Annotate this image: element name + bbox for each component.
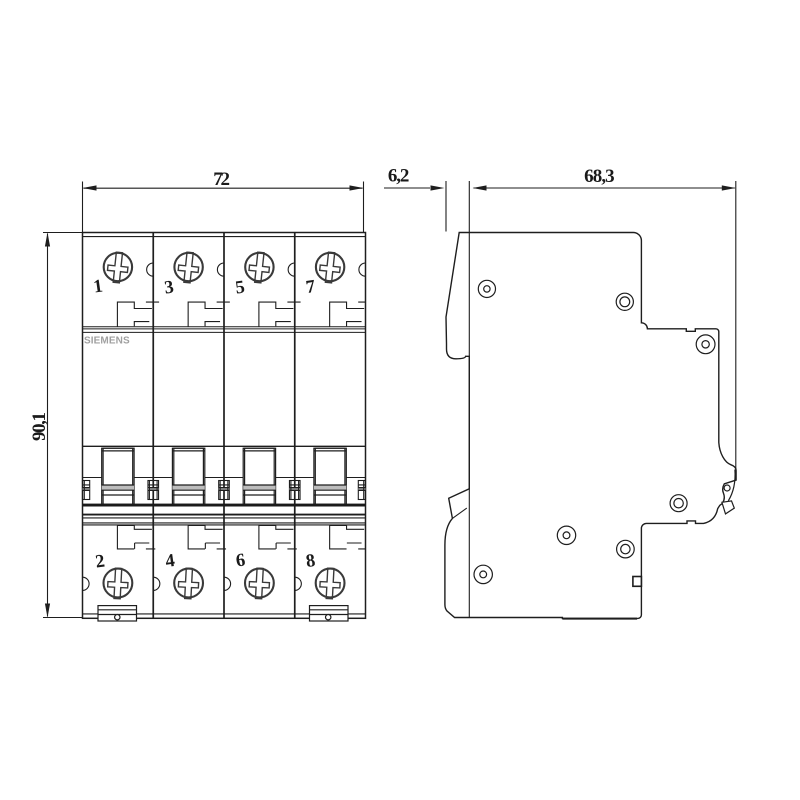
svg-text:90,1: 90,1 xyxy=(29,412,50,441)
svg-text:68,3: 68,3 xyxy=(584,166,615,187)
svg-text:72: 72 xyxy=(213,169,230,190)
svg-text:SIEMENS: SIEMENS xyxy=(84,336,130,347)
svg-text:6,2: 6,2 xyxy=(388,166,410,187)
